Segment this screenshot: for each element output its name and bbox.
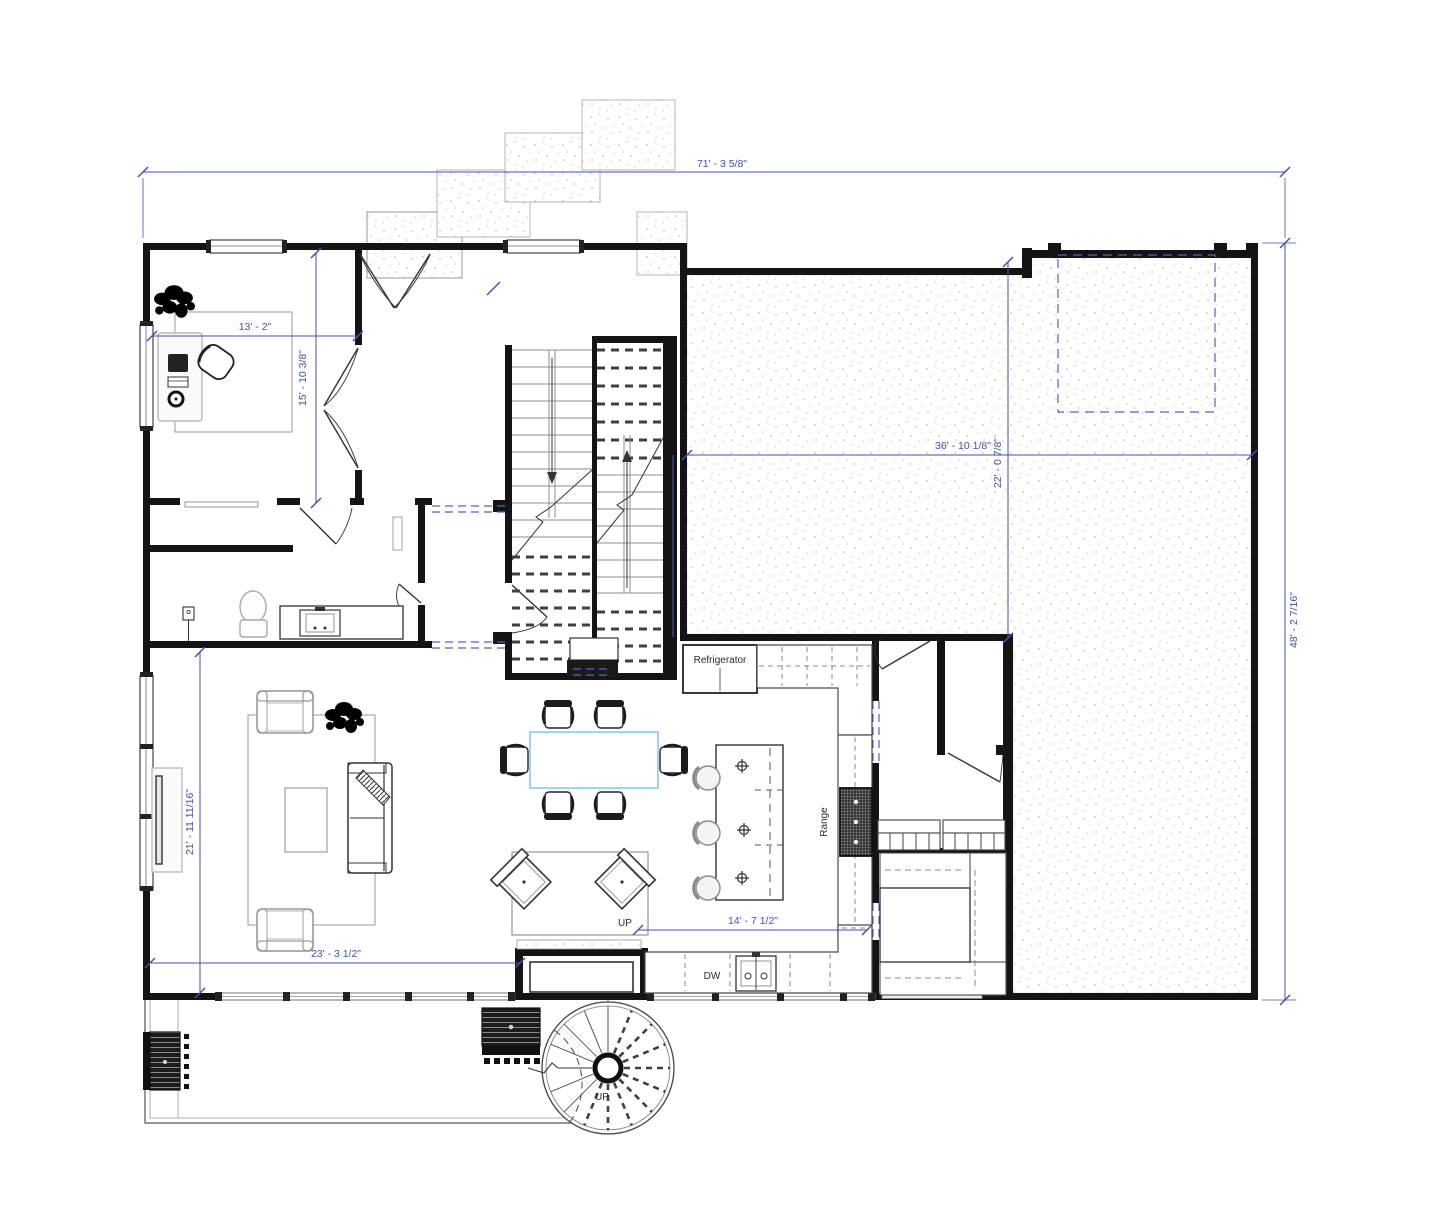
dining-chair bbox=[500, 745, 528, 775]
office-keyboard bbox=[168, 377, 188, 387]
refrigerator-label: Refrigerator bbox=[694, 655, 747, 666]
dim-overall-width bbox=[138, 167, 1290, 238]
dim-living-height-text: 21' - 11 11/16" bbox=[184, 789, 196, 855]
bath-closet-door bbox=[397, 584, 422, 606]
dim-garage-width-text: 36' - 10 1/8" bbox=[935, 440, 991, 452]
dining-table bbox=[530, 732, 658, 788]
foyer-top-window bbox=[503, 240, 584, 253]
fireplace-bay bbox=[517, 940, 641, 992]
mudroom-lockers bbox=[878, 820, 1005, 850]
hall-closet-door bbox=[300, 508, 352, 544]
dim-living-height bbox=[195, 647, 205, 998]
up-main-label: UP bbox=[618, 918, 632, 929]
dim-overall-width-text: 71' - 3 5/8" bbox=[697, 158, 747, 170]
dim-office-height bbox=[311, 248, 321, 508]
range bbox=[840, 788, 872, 856]
lounge-chair-left bbox=[491, 849, 553, 911]
dw-label: DW bbox=[704, 971, 721, 982]
living-plant bbox=[325, 702, 364, 733]
up-spiral-label: UP bbox=[595, 1092, 609, 1103]
armchair-top bbox=[257, 691, 313, 733]
range-label: Range bbox=[819, 807, 830, 837]
mudroom bbox=[878, 820, 1005, 850]
kitchen bbox=[645, 645, 872, 993]
island-stool bbox=[694, 821, 720, 845]
dining-chair bbox=[660, 745, 688, 775]
dining-chair bbox=[543, 700, 573, 728]
dining-area bbox=[491, 700, 688, 935]
grill-deck-left bbox=[143, 1032, 189, 1090]
lounge-chair-right bbox=[593, 849, 655, 911]
dining-chair bbox=[595, 792, 625, 820]
spiral-hub bbox=[595, 1055, 621, 1081]
stair-base-step bbox=[570, 638, 618, 660]
dim-office-width-text: 13' - 2" bbox=[239, 321, 272, 333]
floor-plan-drawing: 71' - 3 5/8" 48' - 2 7/16" 13' - 2" 15' … bbox=[0, 0, 1445, 1228]
grill-deck-right bbox=[482, 1008, 540, 1064]
office-french-doors bbox=[324, 348, 358, 468]
office-furniture bbox=[154, 285, 292, 432]
dim-garage-height-text: 22' - 0 7/8" bbox=[992, 438, 1004, 488]
tv bbox=[156, 776, 162, 864]
dining-chair bbox=[595, 700, 625, 728]
floor-plan-sheet: 71' - 3 5/8" 48' - 2 7/16" 13' - 2" 15' … bbox=[0, 0, 1445, 1228]
dim-kitchen-width-text: 14' - 7 1/2" bbox=[728, 915, 778, 927]
bath-closet-shelf bbox=[393, 517, 402, 550]
dining-chair bbox=[543, 792, 573, 820]
main-staircase bbox=[512, 350, 663, 677]
garage-entry-door bbox=[875, 641, 930, 669]
coffee-table bbox=[285, 788, 327, 852]
dim-overall-height-text: 48' - 2 7/16" bbox=[1288, 592, 1300, 648]
kitchen-island bbox=[716, 745, 783, 900]
office-monitor bbox=[168, 354, 188, 372]
kitchen-sink bbox=[736, 952, 776, 991]
pantry bbox=[880, 853, 1006, 995]
living-left-window-band bbox=[140, 672, 153, 891]
closet-shelf bbox=[185, 502, 258, 507]
living-bottom-window-band bbox=[215, 992, 515, 1001]
sofa bbox=[348, 763, 392, 873]
dim-living-width-text: 23' - 3 1/2" bbox=[311, 948, 361, 960]
office-top-window bbox=[206, 240, 287, 253]
armchair-bottom bbox=[257, 909, 313, 951]
island-stool bbox=[694, 766, 720, 790]
wall-sconce bbox=[183, 607, 194, 641]
wall-tick-mark bbox=[487, 282, 500, 295]
bathroom bbox=[183, 502, 403, 641]
kitchen-top-counter bbox=[757, 645, 872, 735]
spiral-staircase bbox=[528, 1002, 674, 1134]
vanity bbox=[280, 606, 403, 639]
mudroom-closet-door bbox=[948, 753, 1003, 782]
dim-office-height-text: 15' - 10 3/8" bbox=[297, 350, 309, 406]
toilet bbox=[240, 591, 267, 637]
island-stool bbox=[694, 876, 720, 900]
